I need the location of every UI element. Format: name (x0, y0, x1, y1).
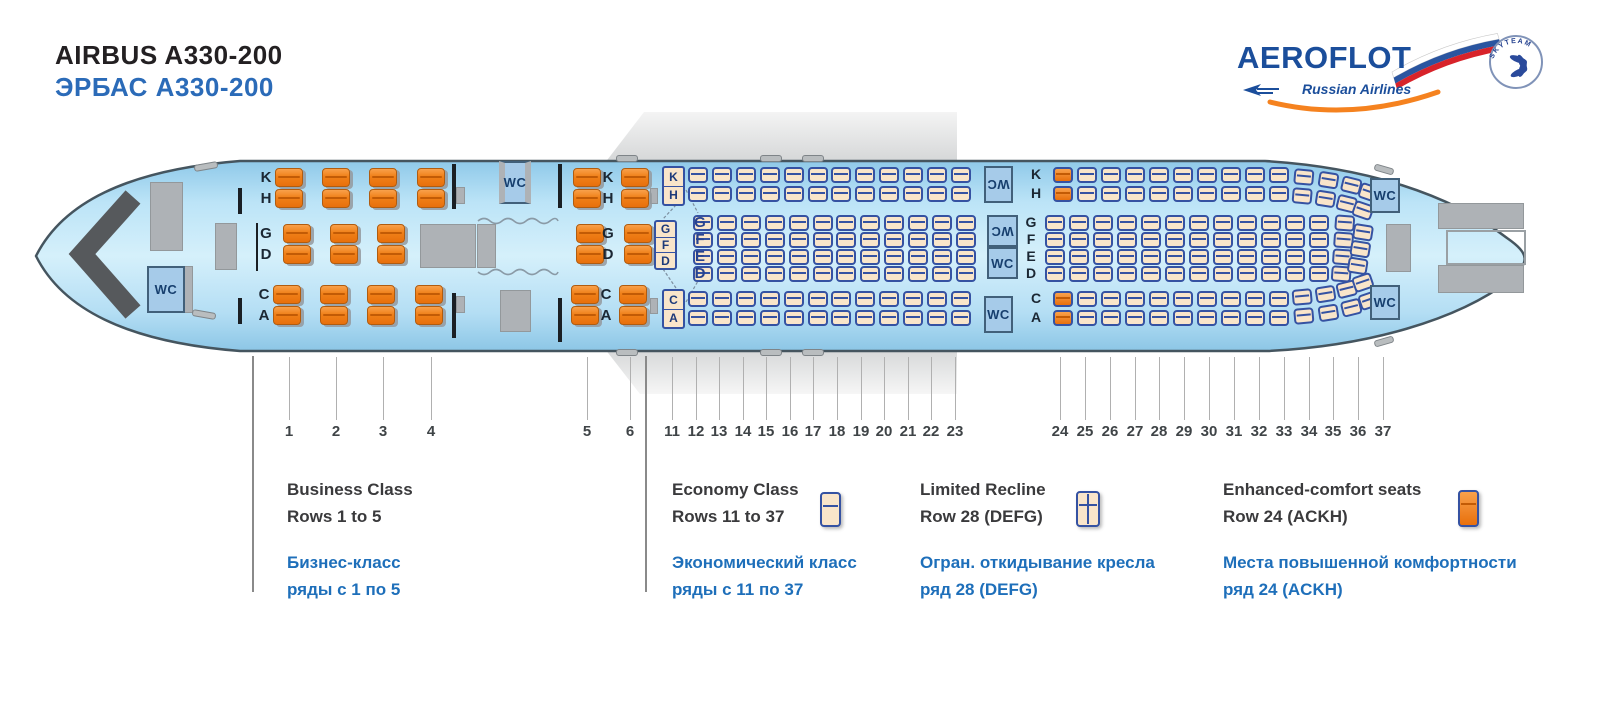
seat (932, 215, 952, 231)
seat (1093, 215, 1113, 231)
row-leader-line (1333, 357, 1334, 420)
column-letter: D (258, 246, 274, 263)
economy-seat-pair (831, 167, 851, 202)
column-letter: F (1023, 231, 1039, 248)
seat (1141, 232, 1161, 248)
seat (1053, 186, 1073, 202)
seat (884, 232, 904, 248)
economy-seat-quad (1309, 215, 1329, 282)
seat (1117, 232, 1137, 248)
row-leader-line (672, 357, 673, 420)
seat (415, 285, 443, 304)
seat (836, 232, 856, 248)
row-number: 15 (753, 423, 779, 440)
seat (1309, 266, 1329, 282)
economy-seat-pair (736, 167, 756, 202)
row-number: 17 (800, 423, 826, 440)
economy-seat-quad (789, 215, 809, 282)
galley-block (420, 224, 476, 268)
row-leader-line (630, 357, 631, 420)
seat (1069, 232, 1089, 248)
economy-seat-pair (855, 167, 875, 202)
galley-block (477, 224, 496, 268)
column-letter: A (1028, 309, 1044, 326)
seat (789, 249, 809, 265)
door-bump (194, 161, 219, 172)
seat (1173, 291, 1193, 307)
galley-block (184, 266, 193, 313)
seat (275, 168, 303, 187)
column-letter: K (600, 169, 616, 186)
economy-seat-pair (927, 167, 947, 202)
seat (1197, 310, 1217, 326)
seat (736, 291, 756, 307)
seat (417, 168, 445, 187)
economy-seat-quad (908, 215, 928, 282)
row-number: 36 (1345, 423, 1371, 440)
seat (322, 189, 350, 208)
seat (717, 249, 737, 265)
economy-seat-quad (1237, 215, 1257, 282)
seat (415, 306, 443, 325)
seat (1197, 291, 1217, 307)
row-number: 4 (418, 423, 444, 440)
door-bump (1373, 335, 1394, 347)
row-number: 25 (1072, 423, 1098, 440)
seat (927, 310, 947, 326)
wc-box: WC (1370, 285, 1400, 320)
economy-seat-quad (1261, 215, 1281, 282)
seat (1261, 215, 1281, 231)
economy-seat-pair (1221, 291, 1241, 326)
seat (908, 232, 928, 248)
seat-map: KHGDCAKHGDCAKHGFDCAGFEDKHGFEDCAWCWCWCWCW… (0, 0, 1602, 708)
seat (1269, 167, 1289, 183)
seat (1221, 186, 1241, 202)
seat (571, 306, 599, 325)
galley-block (456, 187, 465, 204)
seat (624, 245, 652, 264)
seat (571, 285, 599, 304)
economy-seat-quad (1213, 215, 1233, 282)
row11-letter-box: GFD (654, 220, 677, 270)
seat (884, 249, 904, 265)
seat (1293, 168, 1314, 186)
row-leader-line (908, 357, 909, 420)
seat (1165, 215, 1185, 231)
galley-block (650, 298, 658, 314)
seat (932, 266, 952, 282)
economy-seat-quad (1141, 215, 1161, 282)
row-leader-line (1184, 357, 1185, 420)
economy-seat-pair (1292, 288, 1315, 325)
seat (765, 215, 785, 231)
business-seat-pair (369, 168, 397, 208)
seat (956, 266, 976, 282)
economy-seat-pair (808, 167, 828, 202)
economy-seat-quad (741, 215, 761, 282)
seat (1093, 249, 1113, 265)
seat (951, 186, 971, 202)
economy-seat-pair (831, 291, 851, 326)
seat (1053, 310, 1073, 326)
seat (1069, 249, 1089, 265)
economy-seat-pair (688, 291, 708, 326)
seat (879, 186, 899, 202)
seat (1213, 249, 1233, 265)
partition-bar (452, 293, 456, 338)
seat (836, 266, 856, 282)
seat (330, 224, 358, 243)
door-bump (802, 349, 824, 356)
row-number: 20 (871, 423, 897, 440)
row-leader-line (1135, 357, 1136, 420)
row-number: 3 (370, 423, 396, 440)
galley-block (1386, 224, 1411, 272)
seat (1237, 249, 1257, 265)
economy-seat-pair (1077, 167, 1097, 202)
seat (831, 186, 851, 202)
economy-seat-pair (1053, 291, 1073, 326)
row-leader-line (696, 357, 697, 420)
economy-seat-pair (760, 167, 780, 202)
economy-seat-quad (932, 215, 952, 282)
economy-seat-quad (765, 215, 785, 282)
seat (1317, 303, 1339, 322)
seat (1213, 266, 1233, 282)
row-number: 18 (824, 423, 850, 440)
economy-seat-pair (1173, 291, 1193, 326)
seat (789, 215, 809, 231)
galley-block (456, 296, 465, 313)
column-letter: C (598, 286, 614, 303)
column-letter: D (691, 265, 709, 282)
economy-seat-pair (784, 291, 804, 326)
row-leader-line (837, 357, 838, 420)
seat (1352, 223, 1374, 242)
seat (322, 168, 350, 187)
economy-seat-pair (1125, 291, 1145, 326)
row-number: 27 (1122, 423, 1148, 440)
seat (1125, 167, 1145, 183)
seat (932, 232, 952, 248)
limited-recline-seat-icon (1076, 491, 1100, 527)
row-number: 11 (659, 423, 685, 440)
seat (927, 167, 947, 183)
seat (1245, 186, 1265, 202)
seat (1149, 310, 1169, 326)
economy-seat-quad (1045, 215, 1065, 282)
galley-block (150, 182, 183, 251)
seat (808, 310, 828, 326)
galley-block (1438, 203, 1524, 229)
seat (688, 291, 708, 307)
seat (1045, 266, 1065, 282)
column-letter: H (600, 190, 616, 207)
seat (1045, 232, 1065, 248)
seat (836, 249, 856, 265)
seat (813, 249, 833, 265)
business-seat-pair (322, 168, 350, 208)
seat (1221, 167, 1241, 183)
seat (1245, 291, 1265, 307)
seat (688, 310, 708, 326)
economy-seat-pair (1269, 167, 1289, 202)
economy-seat-quad (836, 215, 856, 282)
galley-block (650, 188, 658, 204)
seat (903, 291, 923, 307)
seat (1285, 249, 1305, 265)
seat (951, 291, 971, 307)
seat (717, 215, 737, 231)
wc-label: WC (991, 256, 1014, 271)
seat (619, 306, 647, 325)
seat-letter: G (656, 222, 675, 237)
seat (1237, 232, 1257, 248)
business-seat-pair (571, 285, 599, 325)
seat (712, 186, 732, 202)
row-leader-line (955, 357, 956, 420)
seat (1314, 189, 1336, 208)
seat (1269, 291, 1289, 307)
seat (951, 310, 971, 326)
column-letter: D (600, 246, 616, 263)
galley-block (500, 290, 531, 332)
seat (712, 291, 732, 307)
row-leader-line (1234, 357, 1235, 420)
row11-letter-box: CA (662, 289, 685, 329)
economy-seat-quad (956, 215, 976, 282)
seat (1309, 215, 1329, 231)
seat (808, 186, 828, 202)
economy-seat-pair (879, 167, 899, 202)
seat-letter: H (664, 186, 683, 205)
row-leader-line (719, 357, 720, 420)
seat (884, 215, 904, 231)
economy-seat-quad (1285, 215, 1305, 282)
seat (879, 291, 899, 307)
column-letter: H (258, 190, 274, 207)
seat (1245, 310, 1265, 326)
seat (784, 186, 804, 202)
seat (784, 310, 804, 326)
seat (879, 310, 899, 326)
business-seat-pair (367, 285, 395, 325)
seat (789, 266, 809, 282)
seat (712, 167, 732, 183)
economy-seat-pair (1101, 291, 1121, 326)
row-leader-line (431, 357, 432, 420)
seat (1292, 288, 1313, 306)
business-seat-pair (624, 224, 652, 264)
seat (1045, 249, 1065, 265)
economy-seat-pair (855, 291, 875, 326)
economy-seat-pair (808, 291, 828, 326)
seat (736, 167, 756, 183)
economy-seat-quad (813, 215, 833, 282)
column-letter: H (1028, 185, 1044, 202)
seat (1269, 310, 1289, 326)
seat (1309, 249, 1329, 265)
seat (1213, 232, 1233, 248)
row-leader-line (1060, 357, 1061, 420)
row-number: 35 (1320, 423, 1346, 440)
seat (1237, 266, 1257, 282)
seat (784, 167, 804, 183)
economy-seat-pair (1269, 291, 1289, 326)
seat (741, 266, 761, 282)
economy-seat-pair (1292, 168, 1315, 205)
seat (1141, 215, 1161, 231)
seat (1197, 167, 1217, 183)
seat (1069, 266, 1089, 282)
seat (1314, 285, 1336, 304)
seatmap-page: SKYTEAM AIRBUS A330-200 ЭРБАС А330-200 A… (0, 0, 1602, 708)
column-letter: C (1028, 290, 1044, 307)
seat-letter: D (656, 252, 675, 268)
row-leader-line (1309, 357, 1310, 420)
aeroflot-wordmark: AEROFLOT (1237, 40, 1412, 76)
seat (619, 285, 647, 304)
partition-bar (238, 298, 242, 324)
row-number: 32 (1246, 423, 1272, 440)
seat (1349, 240, 1371, 259)
column-letter: C (256, 286, 272, 303)
business-seat-pair (275, 168, 303, 208)
row-number: 2 (323, 423, 349, 440)
door-bump (616, 155, 638, 162)
galley-block (1438, 265, 1524, 293)
door-bump (760, 349, 782, 356)
seat (1077, 186, 1097, 202)
seat (1309, 232, 1329, 248)
seat (1269, 186, 1289, 202)
seat (1213, 215, 1233, 231)
seat (1045, 215, 1065, 231)
seat (1173, 310, 1193, 326)
economy-seat-pair (1197, 167, 1217, 202)
column-letter: G (258, 225, 274, 242)
door-bump (1373, 163, 1394, 175)
seat (1117, 215, 1137, 231)
row-number: 28 (1146, 423, 1172, 440)
seat (1245, 167, 1265, 183)
seat (855, 186, 875, 202)
seat (855, 291, 875, 307)
seat (1347, 256, 1369, 275)
seat (377, 245, 405, 264)
wc-label: WC (1374, 188, 1397, 203)
seat (1101, 291, 1121, 307)
economy-seat-pair (1221, 167, 1241, 202)
row-leader-line (1259, 357, 1260, 420)
row-leader-line (884, 357, 885, 420)
economy-seat-pair (1173, 167, 1193, 202)
wc-box: WC (147, 266, 185, 313)
seat (903, 310, 923, 326)
seat (831, 310, 851, 326)
seat (1077, 291, 1097, 307)
seat (1077, 310, 1097, 326)
row-leader-line (931, 357, 932, 420)
seat (1165, 266, 1185, 282)
economy-seat-pair (1101, 167, 1121, 202)
economy-seat-quad (860, 215, 880, 282)
row-leader-line (1383, 357, 1384, 420)
seat (736, 186, 756, 202)
economy-seat-pair (1149, 167, 1169, 202)
seat (1189, 215, 1209, 231)
economy-seat-quad (1165, 215, 1185, 282)
seat (927, 291, 947, 307)
economy-seat-pair (688, 167, 708, 202)
economy-seat-pair (951, 167, 971, 202)
seat (765, 232, 785, 248)
seat (1285, 232, 1305, 248)
section-divider-line (645, 356, 647, 592)
wc-label: WC (991, 224, 1014, 239)
column-letter: A (256, 307, 272, 324)
seat (808, 167, 828, 183)
economy-seat-quad (1069, 215, 1089, 282)
partition-bar (558, 298, 562, 342)
seat (1165, 232, 1185, 248)
seat (417, 189, 445, 208)
row-number: 24 (1047, 423, 1073, 440)
wc-label: WC (987, 177, 1010, 192)
seat (573, 189, 601, 208)
seat (860, 215, 880, 231)
business-seat-pair (573, 168, 601, 208)
seat (903, 167, 923, 183)
seat (1165, 249, 1185, 265)
seat (760, 186, 780, 202)
seat (760, 167, 780, 183)
seat (908, 249, 928, 265)
seat (736, 310, 756, 326)
row-number: 23 (942, 423, 968, 440)
row-number: 1 (276, 423, 302, 440)
row-leader-line (336, 357, 337, 420)
row-number: 22 (918, 423, 944, 440)
seat (860, 249, 880, 265)
seat (1189, 266, 1209, 282)
economy-seat-pair (1053, 167, 1073, 202)
economy-seat-pair (1245, 291, 1265, 326)
seat (717, 232, 737, 248)
wc-box: WC (984, 166, 1013, 203)
seat-letter: K (664, 168, 683, 186)
wc-label: WC (504, 175, 527, 190)
seat (813, 215, 833, 231)
economy-seat-pair (712, 291, 732, 326)
column-letter: D (1023, 265, 1039, 282)
row-leader-line (587, 357, 588, 420)
seat (927, 186, 947, 202)
seat (879, 167, 899, 183)
column-letter: G (1023, 214, 1039, 231)
seat (1189, 232, 1209, 248)
seat (908, 215, 928, 231)
seat (741, 215, 761, 231)
seat (1101, 186, 1121, 202)
business-seat-pair (377, 224, 405, 264)
seat (621, 189, 649, 208)
seat (367, 306, 395, 325)
economy-seat-pair (736, 291, 756, 326)
row-number: 31 (1221, 423, 1247, 440)
row-leader-line (1085, 357, 1086, 420)
